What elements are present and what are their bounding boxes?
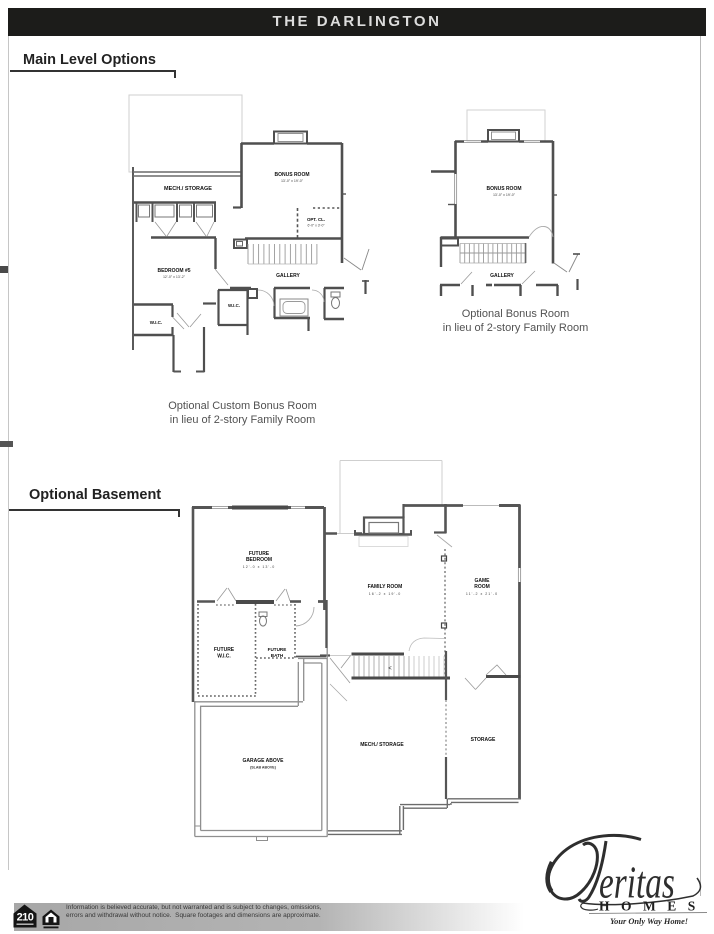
svg-text:HOMES: HOMES (599, 899, 707, 914)
svg-text:210: 210 (17, 912, 34, 924)
svg-text:Your Only Way Home!: Your Only Way Home! (610, 917, 688, 926)
